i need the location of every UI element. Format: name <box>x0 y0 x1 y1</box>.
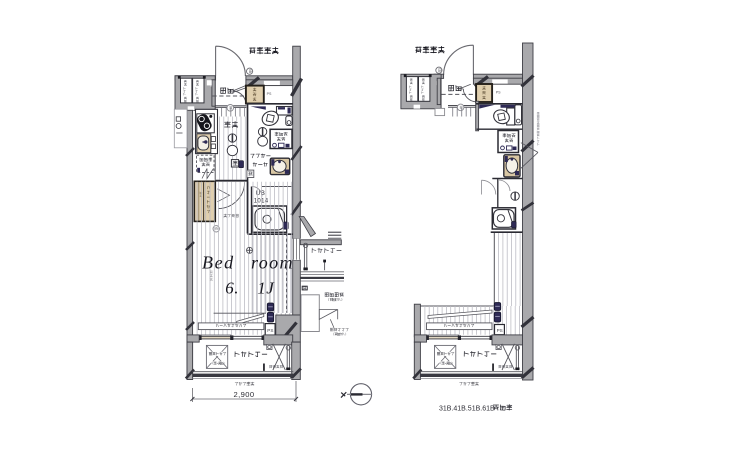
svg-text:Bed: Bed <box>202 253 235 273</box>
svg-text:PS: PS <box>496 90 501 94</box>
svg-text:6.: 6. <box>225 279 239 298</box>
svg-text:PS: PS <box>267 328 273 333</box>
svg-text:PS: PS <box>497 328 503 333</box>
svg-text:31B.41B.51B.61B: 31B.41B.51B.61B <box>439 405 495 412</box>
svg-text:room: room <box>251 253 294 273</box>
svg-text:PS: PS <box>267 92 272 96</box>
svg-text:2,900: 2,900 <box>234 390 255 399</box>
svg-text:1J: 1J <box>257 279 275 298</box>
